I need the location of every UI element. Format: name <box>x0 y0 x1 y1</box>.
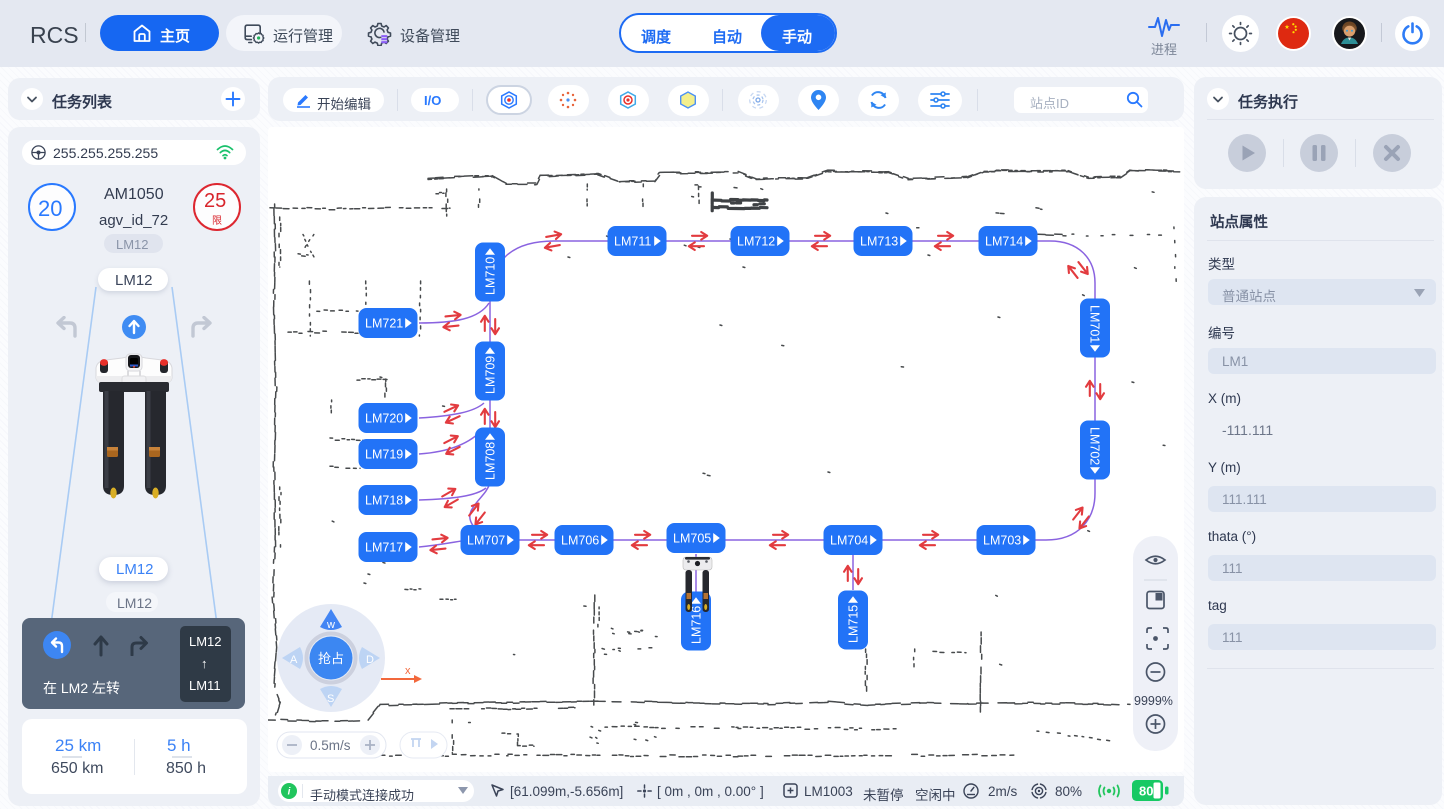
svg-text:LM701: LM701 <box>1087 305 1101 343</box>
svg-text:0.5m/s: 0.5m/s <box>310 738 351 753</box>
svg-text:LM714: LM714 <box>985 235 1023 249</box>
svg-text:LM718: LM718 <box>365 494 403 508</box>
svg-text:LM702: LM702 <box>1087 427 1101 465</box>
svg-text:LM719: LM719 <box>365 448 403 462</box>
svg-text:80: 80 <box>1139 784 1153 799</box>
svg-text:LM712: LM712 <box>737 235 775 249</box>
svg-text:LM716: LM716 <box>690 606 704 644</box>
svg-text:LM720: LM720 <box>365 412 403 426</box>
svg-text:LM708: LM708 <box>484 442 498 480</box>
svg-text:i: i <box>288 787 291 798</box>
svg-text:LM721: LM721 <box>365 317 403 331</box>
svg-text:抢占: 抢占 <box>318 651 344 666</box>
svg-text:LM703: LM703 <box>983 534 1021 548</box>
svg-text:S: S <box>327 693 334 705</box>
svg-text:LM711: LM711 <box>614 235 651 249</box>
svg-text:LM709: LM709 <box>484 356 498 394</box>
svg-text:LM706: LM706 <box>561 534 599 548</box>
svg-text:LM707: LM707 <box>467 534 505 548</box>
svg-text:D: D <box>366 654 374 666</box>
svg-text:LM713: LM713 <box>860 235 898 249</box>
svg-text:9999%: 9999% <box>1134 694 1173 708</box>
svg-text:w: w <box>326 619 335 631</box>
svg-text:x: x <box>405 665 411 677</box>
svg-text:LM710: LM710 <box>484 257 498 295</box>
svg-text:LM704: LM704 <box>830 534 868 548</box>
svg-text:LM705: LM705 <box>673 532 711 546</box>
svg-text:A: A <box>290 654 298 666</box>
svg-text:LM715: LM715 <box>847 605 861 643</box>
svg-text:LM717: LM717 <box>365 541 403 555</box>
